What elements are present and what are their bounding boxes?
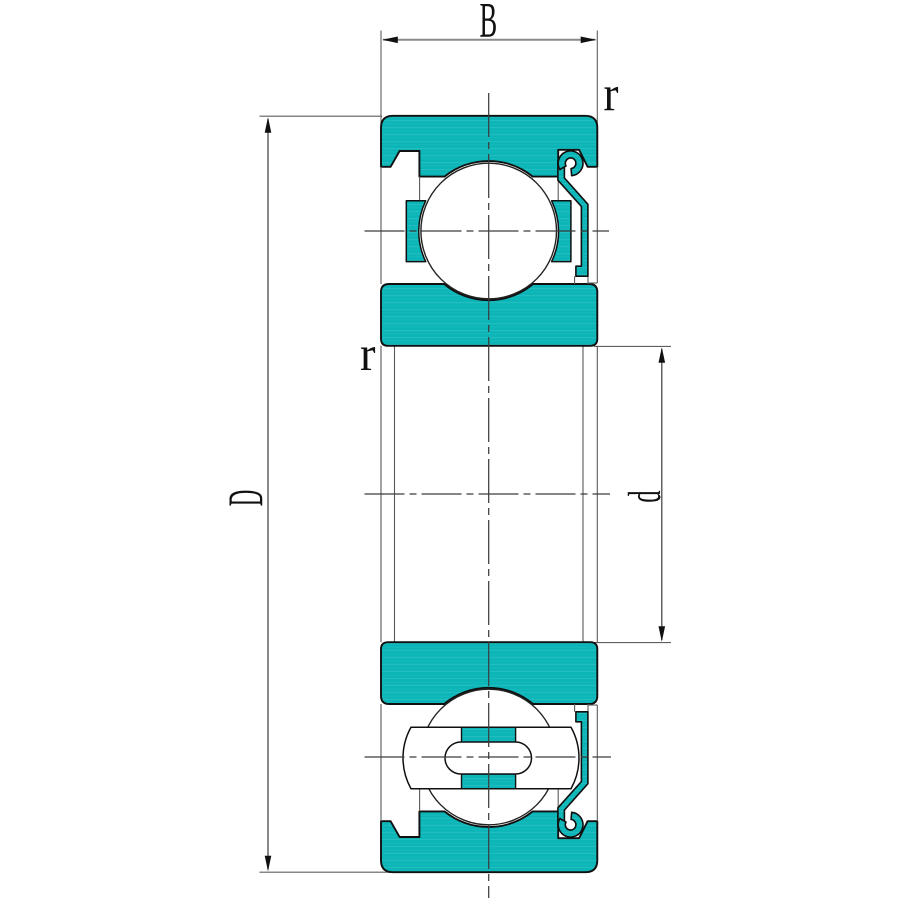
svg-text:d: d [620, 490, 671, 502]
svg-text:r: r [360, 327, 376, 381]
svg-text:B: B [479, 0, 497, 48]
svg-text:D: D [218, 490, 273, 507]
svg-text:r: r [604, 67, 619, 122]
